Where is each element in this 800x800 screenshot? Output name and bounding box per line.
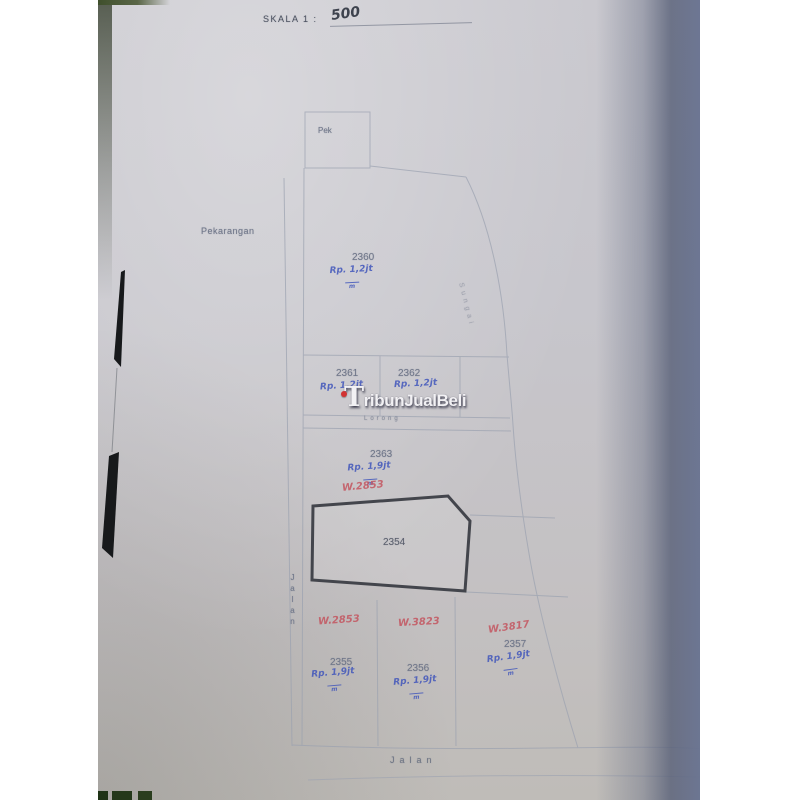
plot-2360-price-unit: m bbox=[345, 282, 360, 291]
ink-mark-connector bbox=[112, 368, 117, 452]
alley-top-line bbox=[303, 415, 510, 418]
ext-line-lower bbox=[466, 592, 568, 597]
scale-handwritten-value: 500 bbox=[330, 5, 361, 23]
jalan-left-label: Jalan bbox=[288, 573, 296, 628]
divider-2356-2357 bbox=[455, 597, 456, 746]
plot-2361-number: 2361 bbox=[336, 369, 358, 379]
plot-2360-price: Rp. 1,2jt m bbox=[329, 265, 374, 292]
jalan-bottom-label: Jalan bbox=[390, 756, 437, 765]
plot-2356-price-unit: m bbox=[409, 692, 424, 701]
ink-marks bbox=[102, 270, 125, 558]
plot-2356-number: 2356 bbox=[407, 664, 429, 674]
plot-2360-price-value: Rp. 1,2jt bbox=[329, 265, 373, 276]
plot-2356-price-value: Rp. 1,9jt bbox=[393, 675, 437, 688]
plot-2360-number: 2360 bbox=[352, 253, 374, 263]
ink-mark-upper bbox=[114, 270, 125, 367]
left-edge-shadow bbox=[98, 0, 112, 300]
plot-2355-price-value: Rp. 1,9jt bbox=[311, 667, 355, 680]
watermark-red-dot bbox=[341, 391, 347, 397]
parcel-2360-top-line bbox=[370, 166, 466, 177]
ext-line-upper bbox=[470, 515, 555, 518]
watermark: TribunJualBeli bbox=[344, 382, 466, 413]
plot-2357-number: 2357 bbox=[504, 640, 526, 650]
row-top-line bbox=[303, 355, 509, 357]
pek-parcel-outline bbox=[305, 112, 370, 168]
plot-2363-number: 2363 bbox=[370, 450, 392, 460]
plot-2362-number: 2362 bbox=[398, 369, 420, 379]
lorong-label: Lorong bbox=[364, 416, 401, 422]
paper-sheet: SKALA 1 : 500 Pek Pekarangan Lorong Sung… bbox=[98, 0, 700, 800]
plot-2354-number: 2354 bbox=[383, 538, 405, 548]
pek-label: Pek bbox=[318, 127, 332, 135]
table-edge-green-top bbox=[98, 0, 170, 5]
pekarangan-label: Pekarangan bbox=[201, 227, 255, 236]
alley-bottom-line bbox=[303, 428, 511, 431]
left-road-line bbox=[284, 178, 292, 746]
plot-2355-price: Rp. 1,9jt m bbox=[311, 667, 356, 696]
ink-mark-lower bbox=[102, 452, 119, 558]
page-edge-shadow bbox=[596, 0, 700, 800]
plot-2363-price-value: Rp. 1,9jt bbox=[347, 462, 391, 474]
table-edge-green-bottom bbox=[98, 791, 176, 800]
photo-of-plot-map: SKALA 1 : 500 Pek Pekarangan Lorong Sung… bbox=[0, 0, 800, 800]
divider-2355-2356 bbox=[377, 600, 378, 746]
scale-label: SKALA 1 : bbox=[263, 15, 318, 24]
plot-2356-price: Rp. 1,9jt m bbox=[393, 675, 438, 704]
left-boundary-line bbox=[302, 168, 304, 746]
plot-2357-price-unit: m bbox=[503, 668, 518, 678]
plot-2355-price-unit: m bbox=[327, 684, 342, 693]
